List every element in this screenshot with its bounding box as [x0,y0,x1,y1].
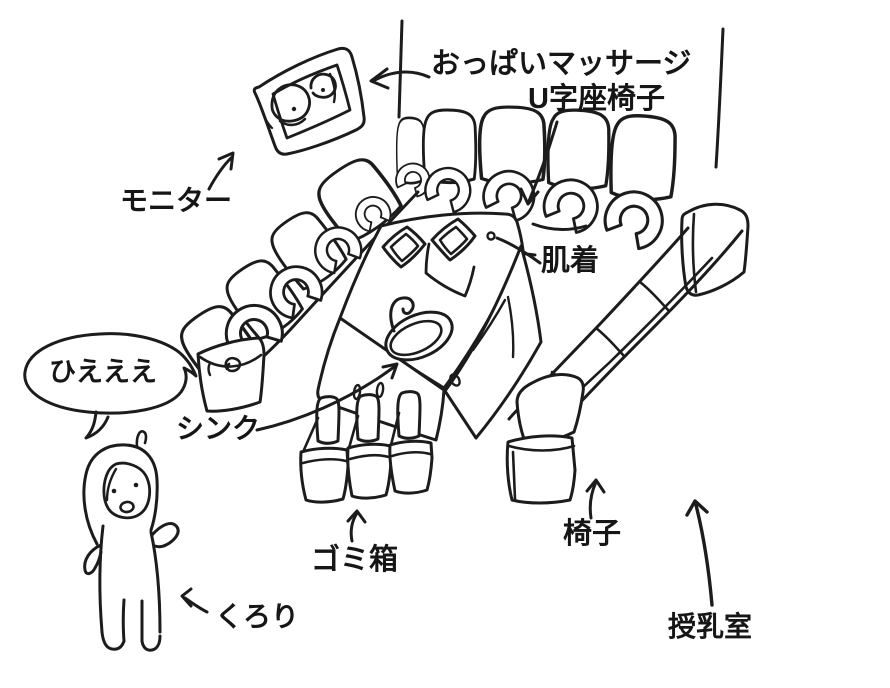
monitor-sketch [254,48,364,154]
label-monitor: モニター [120,186,232,217]
arrow-chair [587,480,604,518]
label-u-shaped-chair: U字座椅子 [528,84,665,116]
room-sketch [0,0,890,688]
label-underwear: 肌着 [541,246,599,278]
label-nursing-room: 授乳室 [668,612,752,643]
speech-bubble-text: ひえええ [49,358,157,388]
sketch-canvas: おっぱいマッサージ U字座椅子 モニター 肌着 ひえええ シンク ゴミ箱 椅子 … [0,0,890,688]
arrow-nursing-room [687,501,712,605]
arrow-monitor-label [209,153,233,189]
label-sink: シンク [176,414,260,445]
label-chair: 椅子 [563,519,621,551]
arrow-kurori [182,589,207,612]
label-trash-can: ゴミ箱 [311,545,398,577]
label-kurori: くろり [215,602,299,633]
person-kurori [84,431,178,650]
label-breast-massage: おっぱいマッサージ [431,49,691,81]
arrow-trash [348,511,365,541]
